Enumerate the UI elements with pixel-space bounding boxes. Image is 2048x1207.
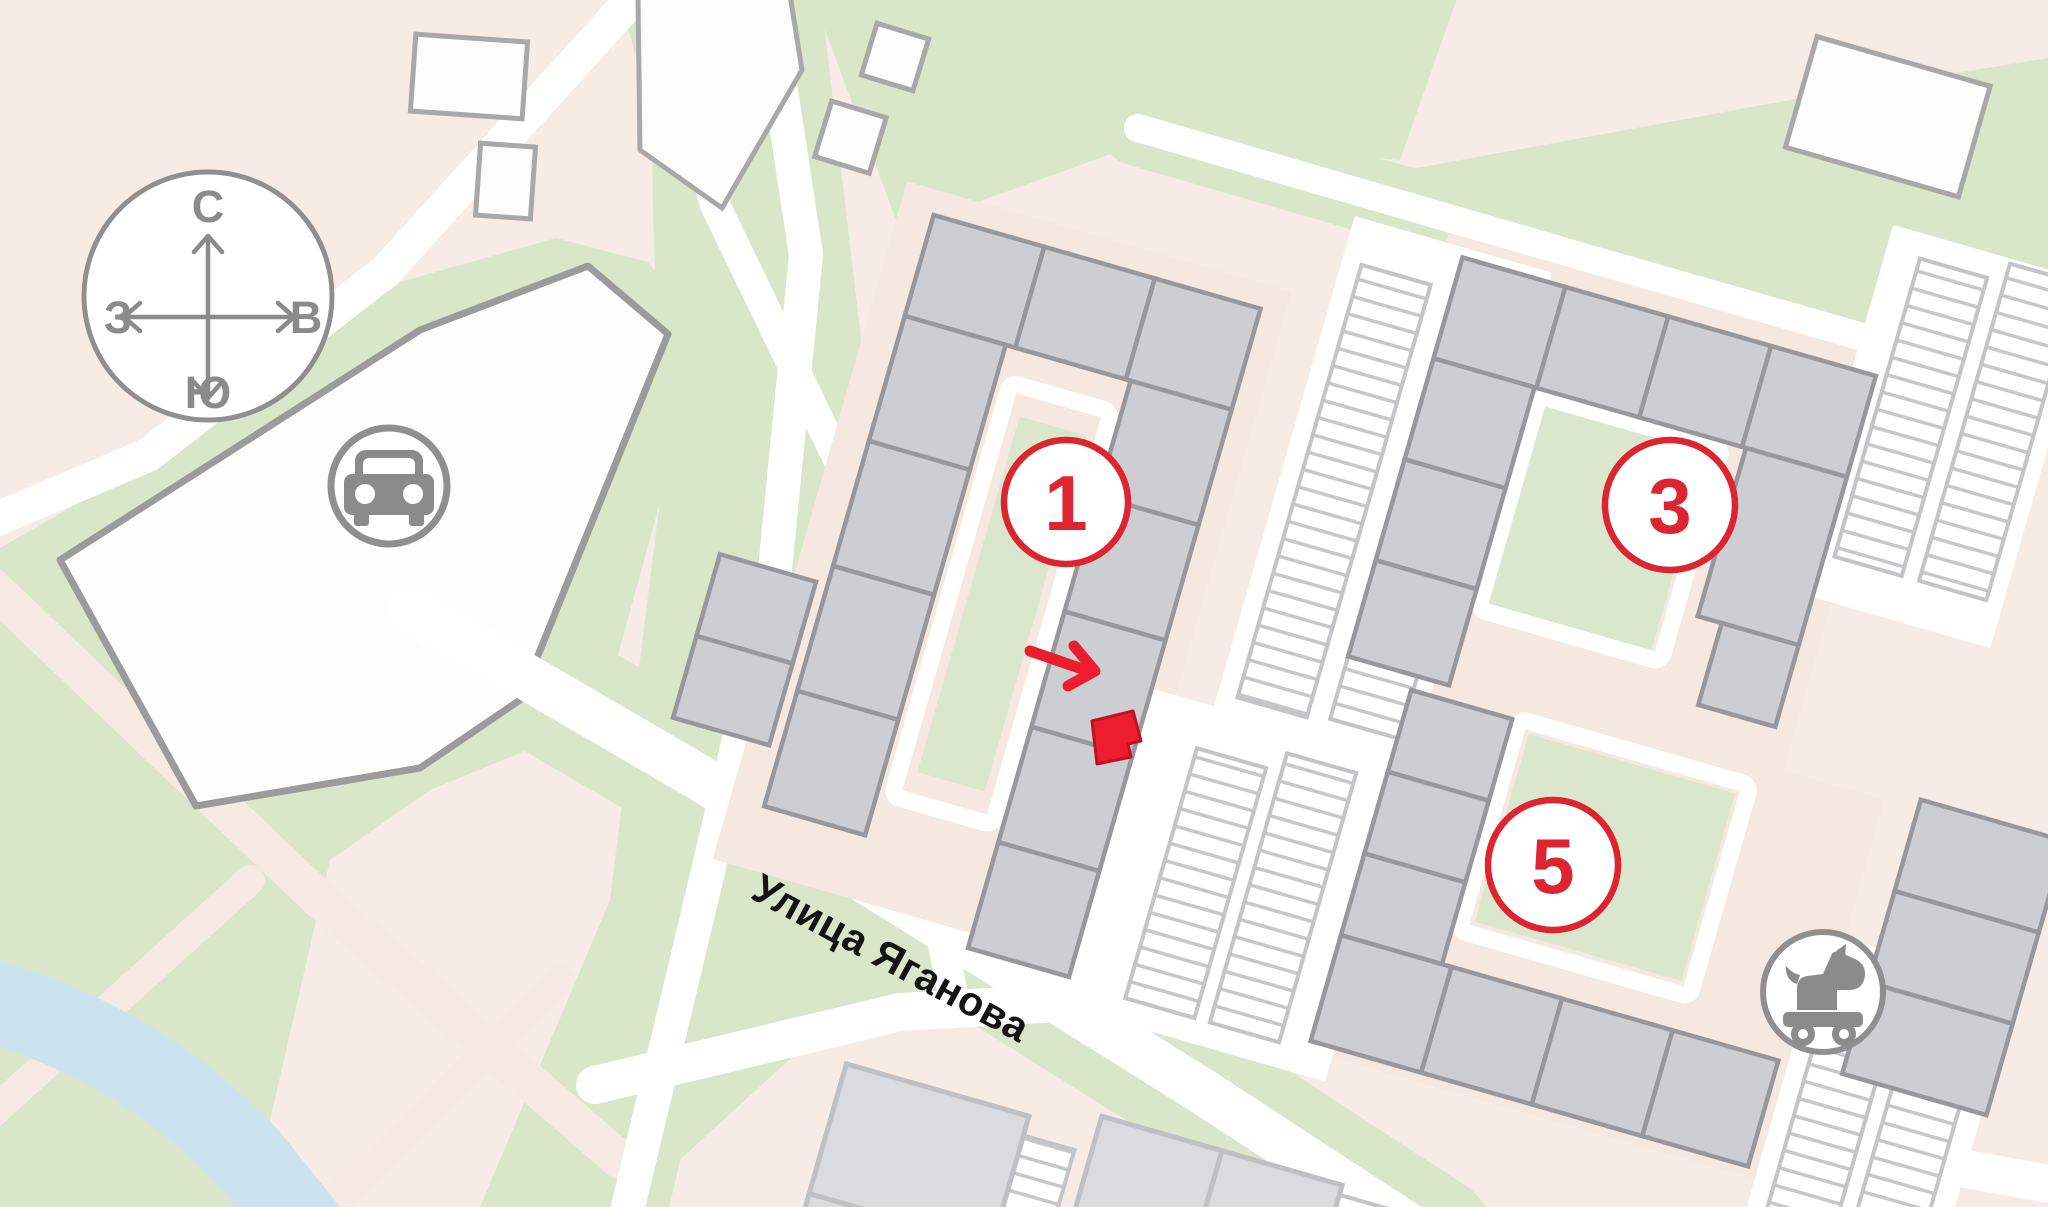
svg-text:3: 3 [1648,462,1691,550]
compass-east-label: В [290,292,323,343]
compass-north-label: С [192,181,225,232]
compass-west-label: З [104,292,132,343]
site-map: Улица Яганова 1 3 5 С В Ю З [0,0,2048,1207]
building-5-marker[interactable]: 5 [1488,800,1618,930]
svg-text:5: 5 [1531,822,1574,910]
svg-text:1: 1 [1044,459,1087,547]
compass: С В Ю З [84,172,332,420]
toy-horse-icon [1763,932,1883,1052]
building-3-marker[interactable]: 3 [1605,440,1735,570]
compass-south-label: Ю [185,367,231,418]
building-1-marker[interactable]: 1 [1004,440,1128,564]
map-canvas: Улица Яганова 1 3 5 С В Ю З [0,0,2048,1207]
car-icon [331,428,447,544]
